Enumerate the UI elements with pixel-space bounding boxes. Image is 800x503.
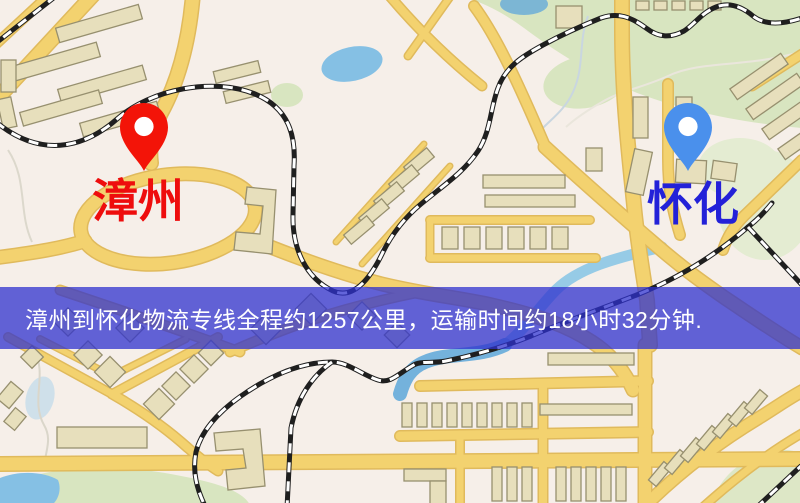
origin-label: 漳州 — [92, 176, 184, 227]
building — [447, 403, 457, 427]
building — [477, 403, 487, 427]
map-canvas: 漳州 怀化 — [0, 0, 800, 503]
building — [540, 404, 632, 415]
building — [1, 60, 16, 92]
building — [633, 97, 648, 138]
building — [57, 427, 147, 448]
map-image: 漳州 怀化 漳州到怀化物流专线全程约1257公里，运输时间约18小时32分钟. — [0, 0, 800, 503]
building — [417, 403, 427, 427]
building — [464, 227, 480, 249]
building — [402, 403, 412, 427]
building — [636, 1, 649, 10]
building — [654, 1, 667, 10]
building — [485, 195, 575, 207]
building — [586, 148, 602, 171]
route-info-text: 漳州到怀化物流专线全程约1257公里，运输时间约18小时32分钟. — [25, 301, 702, 335]
building — [552, 227, 568, 249]
building — [508, 227, 524, 249]
building — [586, 467, 596, 501]
road — [400, 432, 648, 436]
building — [522, 467, 532, 501]
building — [616, 467, 626, 501]
building — [672, 1, 685, 10]
route-info-banner: 漳州到怀化物流专线全程约1257公里，运输时间约18小时32分钟. — [0, 287, 800, 349]
building — [430, 481, 446, 503]
building — [548, 353, 634, 365]
building — [404, 469, 446, 481]
building — [530, 227, 546, 249]
water-area — [0, 473, 60, 503]
destination-label: 怀化 — [647, 179, 739, 230]
building — [507, 467, 517, 501]
building — [522, 403, 532, 427]
building — [492, 467, 502, 501]
building — [432, 403, 442, 427]
building — [492, 403, 502, 427]
building — [556, 6, 582, 28]
building — [601, 467, 611, 501]
road — [420, 381, 648, 386]
building — [507, 403, 517, 427]
building — [442, 227, 458, 249]
building — [483, 175, 565, 188]
building — [462, 403, 472, 427]
building — [556, 467, 566, 501]
building — [571, 467, 581, 501]
building — [690, 1, 703, 10]
park-area — [271, 83, 303, 107]
building — [486, 227, 502, 249]
